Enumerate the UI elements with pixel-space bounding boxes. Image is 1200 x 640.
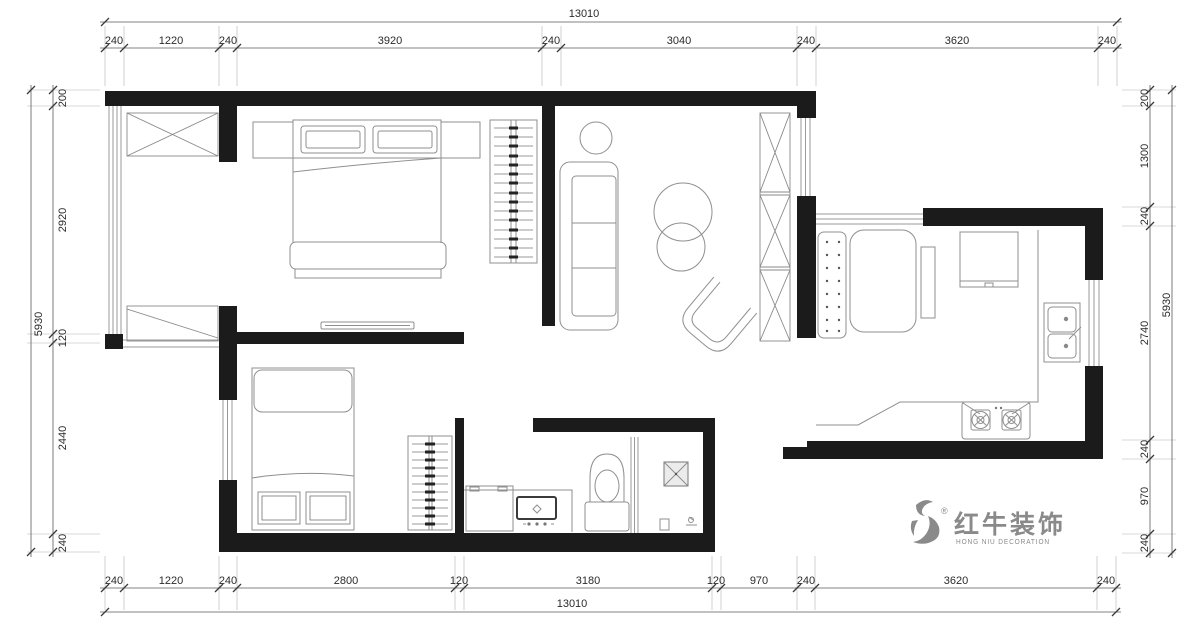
wall-kitchen-right-upper xyxy=(1085,226,1103,280)
dining-bench xyxy=(818,232,846,338)
radiator-master xyxy=(490,120,537,263)
dim-label-right-seg-3: 2740 xyxy=(1139,321,1151,345)
walls xyxy=(105,91,1103,552)
tall-cabinet xyxy=(760,113,790,341)
dim-label-bottom-seg-5: 3180 xyxy=(576,575,600,587)
wall-pier-lower xyxy=(219,306,237,400)
dim-label-top-total: 13010 xyxy=(569,8,600,20)
bed-second xyxy=(252,368,354,530)
tv xyxy=(321,322,414,329)
coffee-table-small xyxy=(657,223,705,271)
shower-glass xyxy=(631,437,638,533)
radiator-second xyxy=(408,436,452,530)
dim-label-right-seg-5: 970 xyxy=(1139,487,1151,505)
dim-label-left-seg-2: 120 xyxy=(57,329,69,347)
pillow xyxy=(373,126,437,153)
sofa xyxy=(560,162,618,330)
wall-kitchen-top xyxy=(923,208,1103,226)
bathroom-fixtures xyxy=(464,437,697,533)
dim-label-top-seg-5: 3040 xyxy=(667,35,691,47)
dim-label-right-seg-1: 1300 xyxy=(1139,144,1151,168)
dim-label-bottom-seg-8: 240 xyxy=(797,575,815,587)
living-room-furniture xyxy=(321,122,757,357)
sink xyxy=(1044,303,1081,362)
dim-label-top-seg-4: 240 xyxy=(542,35,560,47)
logo-brand-cn: 红牛装饰 xyxy=(954,510,1066,539)
bath-accessory xyxy=(660,519,669,530)
counter-edge xyxy=(816,230,1038,425)
dim-label-bottom-seg-9: 3620 xyxy=(944,575,968,587)
dim-label-top-seg-3: 3920 xyxy=(378,35,402,47)
nightstand-right xyxy=(441,122,480,158)
floor-faucet xyxy=(686,517,697,525)
dim-label-top-seg-2: 240 xyxy=(219,35,237,47)
wall-kitchen-left xyxy=(797,226,816,338)
logo-brand-en: HONG NIU DECORATION xyxy=(956,537,1050,546)
dim-label-right-seg-6: 240 xyxy=(1139,534,1151,552)
bay-cabinet-bottom xyxy=(127,306,218,341)
washing-machine xyxy=(466,486,513,531)
table-runner xyxy=(921,247,935,318)
dim-label-top-seg-6: 240 xyxy=(797,35,815,47)
refrigerator xyxy=(960,232,1018,287)
wall-top xyxy=(105,91,816,106)
second-bedroom-furniture xyxy=(252,368,452,530)
dim-label-bottom-seg-0: 240 xyxy=(105,575,123,587)
coffee-table-large xyxy=(654,183,712,241)
dim-label-left-seg-4: 240 xyxy=(57,534,69,552)
dim-label-bottom-seg-10: 240 xyxy=(1097,575,1115,587)
vanity-sink xyxy=(517,497,556,526)
dim-label-left-total: 5930 xyxy=(33,312,45,336)
dim-label-bottom-seg-6: 120 xyxy=(707,575,725,587)
dim-label-bottom-total: 13010 xyxy=(557,598,588,610)
wall-bay-column xyxy=(105,334,123,349)
dim-label-right-seg-2: 240 xyxy=(1139,207,1151,225)
dining-table xyxy=(850,230,916,332)
kitchen-right-window xyxy=(1089,280,1099,366)
dim-label-top-seg-0: 240 xyxy=(105,35,123,47)
wall-bedroom1-east xyxy=(542,106,555,326)
wall-bottom xyxy=(219,533,715,552)
bed-master xyxy=(290,120,446,278)
dim-label-top-seg-1: 1220 xyxy=(159,35,183,47)
pillow xyxy=(258,492,300,524)
dim-label-right-seg-0: 200 xyxy=(1139,89,1151,107)
dim-label-top-seg-8: 240 xyxy=(1098,35,1116,47)
bay-window xyxy=(109,106,121,334)
bull-icon xyxy=(911,500,940,544)
bay-cabinet-top xyxy=(127,113,218,156)
dim-label-bottom-seg-3: 2800 xyxy=(334,575,358,587)
dim-label-left-seg-0: 200 xyxy=(57,89,69,107)
floor-plan-canvas: 13010 240 1220 240 3920 240 3040 240 362… xyxy=(0,0,1200,640)
wall-bathroom-right xyxy=(703,432,715,552)
wall-living-east-upper xyxy=(797,91,816,118)
living-room-window xyxy=(801,118,810,196)
dim-label-bottom-seg-2: 240 xyxy=(219,575,237,587)
wall-kitchen-bottom xyxy=(783,441,1103,459)
dim-label-bottom-seg-4: 120 xyxy=(450,575,468,587)
wall-bedroom1-south xyxy=(237,332,464,344)
dim-label-left-seg-3: 2440 xyxy=(57,426,69,450)
armchair xyxy=(677,277,757,357)
nightstand-left xyxy=(253,122,293,158)
dim-label-bottom-seg-7: 970 xyxy=(750,575,768,587)
bedroom2-window xyxy=(223,400,232,480)
wall-bathroom-top xyxy=(533,418,715,432)
brand-logo: ® 红牛装饰 HONG NIU DECORATION xyxy=(911,500,1066,546)
wall-living-east-corner xyxy=(797,196,816,226)
wall-bathroom-left xyxy=(455,418,464,533)
floor-drain xyxy=(664,462,688,486)
wall-pier-upper xyxy=(219,106,237,162)
kitchen-furniture xyxy=(816,230,1081,439)
pillow xyxy=(301,126,365,153)
dim-label-right-seg-4: 240 xyxy=(1139,440,1151,458)
dim-label-bottom-seg-1: 1220 xyxy=(159,575,183,587)
kitchen-top-window xyxy=(816,214,923,224)
logo-registered-icon: ® xyxy=(941,506,948,516)
toilet xyxy=(585,454,629,531)
gas-stove xyxy=(962,402,1030,439)
dim-label-left-seg-1: 2920 xyxy=(57,208,69,232)
floor-plan-drawing: 13010 240 1220 240 3920 240 3040 240 362… xyxy=(0,0,1200,640)
dim-label-right-total: 5930 xyxy=(1161,293,1173,317)
pillow xyxy=(306,492,350,524)
dim-label-top-seg-7: 3620 xyxy=(945,35,969,47)
side-table xyxy=(580,122,612,154)
master-bedroom-furniture xyxy=(253,120,537,278)
